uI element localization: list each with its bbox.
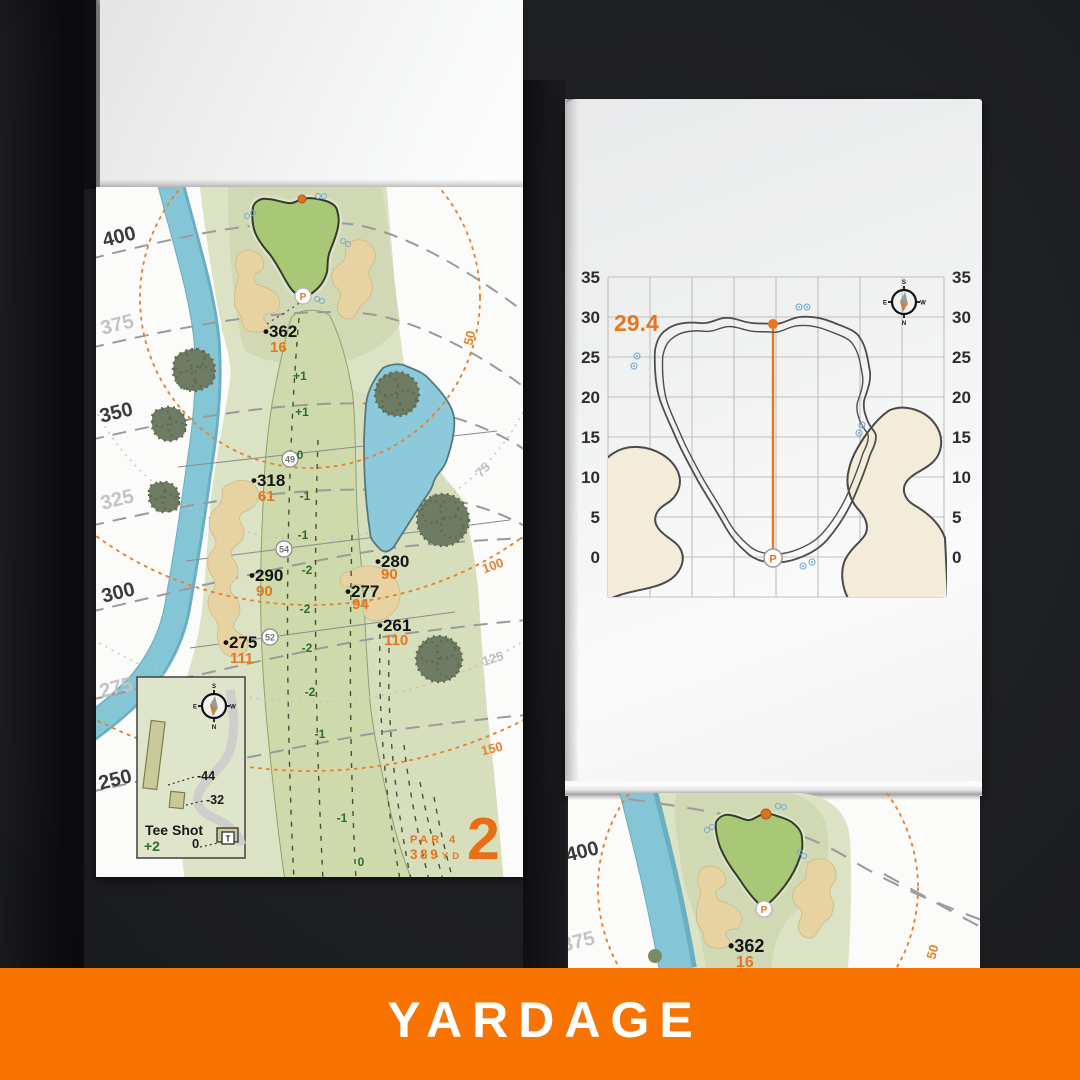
svg-text:+2: +2 bbox=[144, 838, 160, 854]
svg-text:-1: -1 bbox=[337, 811, 348, 825]
svg-text:0: 0 bbox=[952, 548, 961, 567]
svg-text:30: 30 bbox=[952, 308, 971, 327]
svg-text:16: 16 bbox=[270, 339, 287, 356]
svg-text:5: 5 bbox=[952, 508, 961, 527]
svg-text:30: 30 bbox=[581, 308, 600, 327]
svg-text:0: 0 bbox=[297, 448, 304, 462]
svg-text:15: 15 bbox=[581, 428, 600, 447]
svg-text:N: N bbox=[902, 321, 906, 327]
svg-text:94: 94 bbox=[352, 596, 369, 613]
svg-text:P: P bbox=[761, 905, 768, 916]
svg-text:350: 350 bbox=[97, 398, 135, 427]
svg-text:-32: -32 bbox=[206, 793, 224, 807]
svg-text:-2: -2 bbox=[302, 563, 313, 577]
svg-text:16: 16 bbox=[736, 954, 754, 968]
svg-text:-44: -44 bbox=[197, 769, 215, 783]
svg-text:375: 375 bbox=[98, 310, 136, 339]
svg-text:5: 5 bbox=[591, 508, 600, 527]
svg-text:-2: -2 bbox=[302, 641, 313, 655]
svg-text:0: 0 bbox=[192, 836, 199, 851]
svg-text:W: W bbox=[920, 301, 926, 307]
svg-text:10: 10 bbox=[952, 468, 971, 487]
svg-text:25: 25 bbox=[952, 348, 971, 367]
svg-text:+1: +1 bbox=[293, 369, 307, 383]
svg-text:-2: -2 bbox=[300, 602, 311, 616]
svg-text:100: 100 bbox=[480, 555, 506, 577]
svg-text:E: E bbox=[193, 705, 197, 711]
svg-text:54: 54 bbox=[279, 545, 289, 555]
svg-text:S: S bbox=[212, 684, 216, 690]
svg-text:2: 2 bbox=[467, 806, 500, 872]
svg-text:35: 35 bbox=[952, 268, 971, 287]
svg-text:250: 250 bbox=[96, 765, 134, 794]
svg-text:N: N bbox=[212, 725, 216, 731]
svg-text:110: 110 bbox=[384, 632, 408, 649]
svg-text:61: 61 bbox=[258, 488, 275, 505]
svg-text:P: P bbox=[300, 292, 307, 303]
svg-text:75: 75 bbox=[472, 459, 493, 480]
svg-text:-1: -1 bbox=[315, 727, 326, 741]
svg-text:15: 15 bbox=[952, 428, 971, 447]
svg-text:400: 400 bbox=[568, 837, 601, 866]
svg-text:325: 325 bbox=[98, 485, 136, 514]
svg-text:-1: -1 bbox=[298, 528, 309, 542]
svg-text:375: 375 bbox=[568, 927, 597, 956]
svg-text:T: T bbox=[226, 835, 231, 844]
svg-text:90: 90 bbox=[256, 583, 273, 600]
svg-text:111: 111 bbox=[230, 650, 253, 667]
svg-text:400: 400 bbox=[100, 222, 138, 251]
svg-text:20: 20 bbox=[952, 388, 971, 407]
svg-text:125: 125 bbox=[480, 648, 505, 669]
svg-text:29.4: 29.4 bbox=[614, 310, 659, 336]
svg-text:•362: •362 bbox=[728, 936, 764, 956]
svg-text:35: 35 bbox=[581, 268, 600, 287]
svg-text:PAR 4: PAR 4 bbox=[410, 834, 459, 846]
svg-text:-1: -1 bbox=[300, 489, 311, 503]
svg-text:50: 50 bbox=[923, 943, 941, 961]
svg-text:25: 25 bbox=[581, 348, 600, 367]
svg-text:0: 0 bbox=[358, 855, 365, 869]
svg-text:S: S bbox=[902, 280, 906, 286]
svg-text:+1: +1 bbox=[295, 405, 309, 419]
svg-text:49: 49 bbox=[285, 455, 295, 465]
svg-text:P: P bbox=[769, 554, 776, 566]
svg-text:300: 300 bbox=[99, 578, 137, 607]
svg-text:-2: -2 bbox=[305, 685, 316, 699]
svg-text:90: 90 bbox=[381, 566, 398, 583]
svg-text:0: 0 bbox=[591, 548, 600, 567]
svg-text:W: W bbox=[230, 705, 236, 711]
svg-text:E: E bbox=[883, 301, 887, 307]
svg-text:20: 20 bbox=[581, 388, 600, 407]
svg-text:10: 10 bbox=[581, 468, 600, 487]
svg-text:52: 52 bbox=[265, 633, 275, 643]
